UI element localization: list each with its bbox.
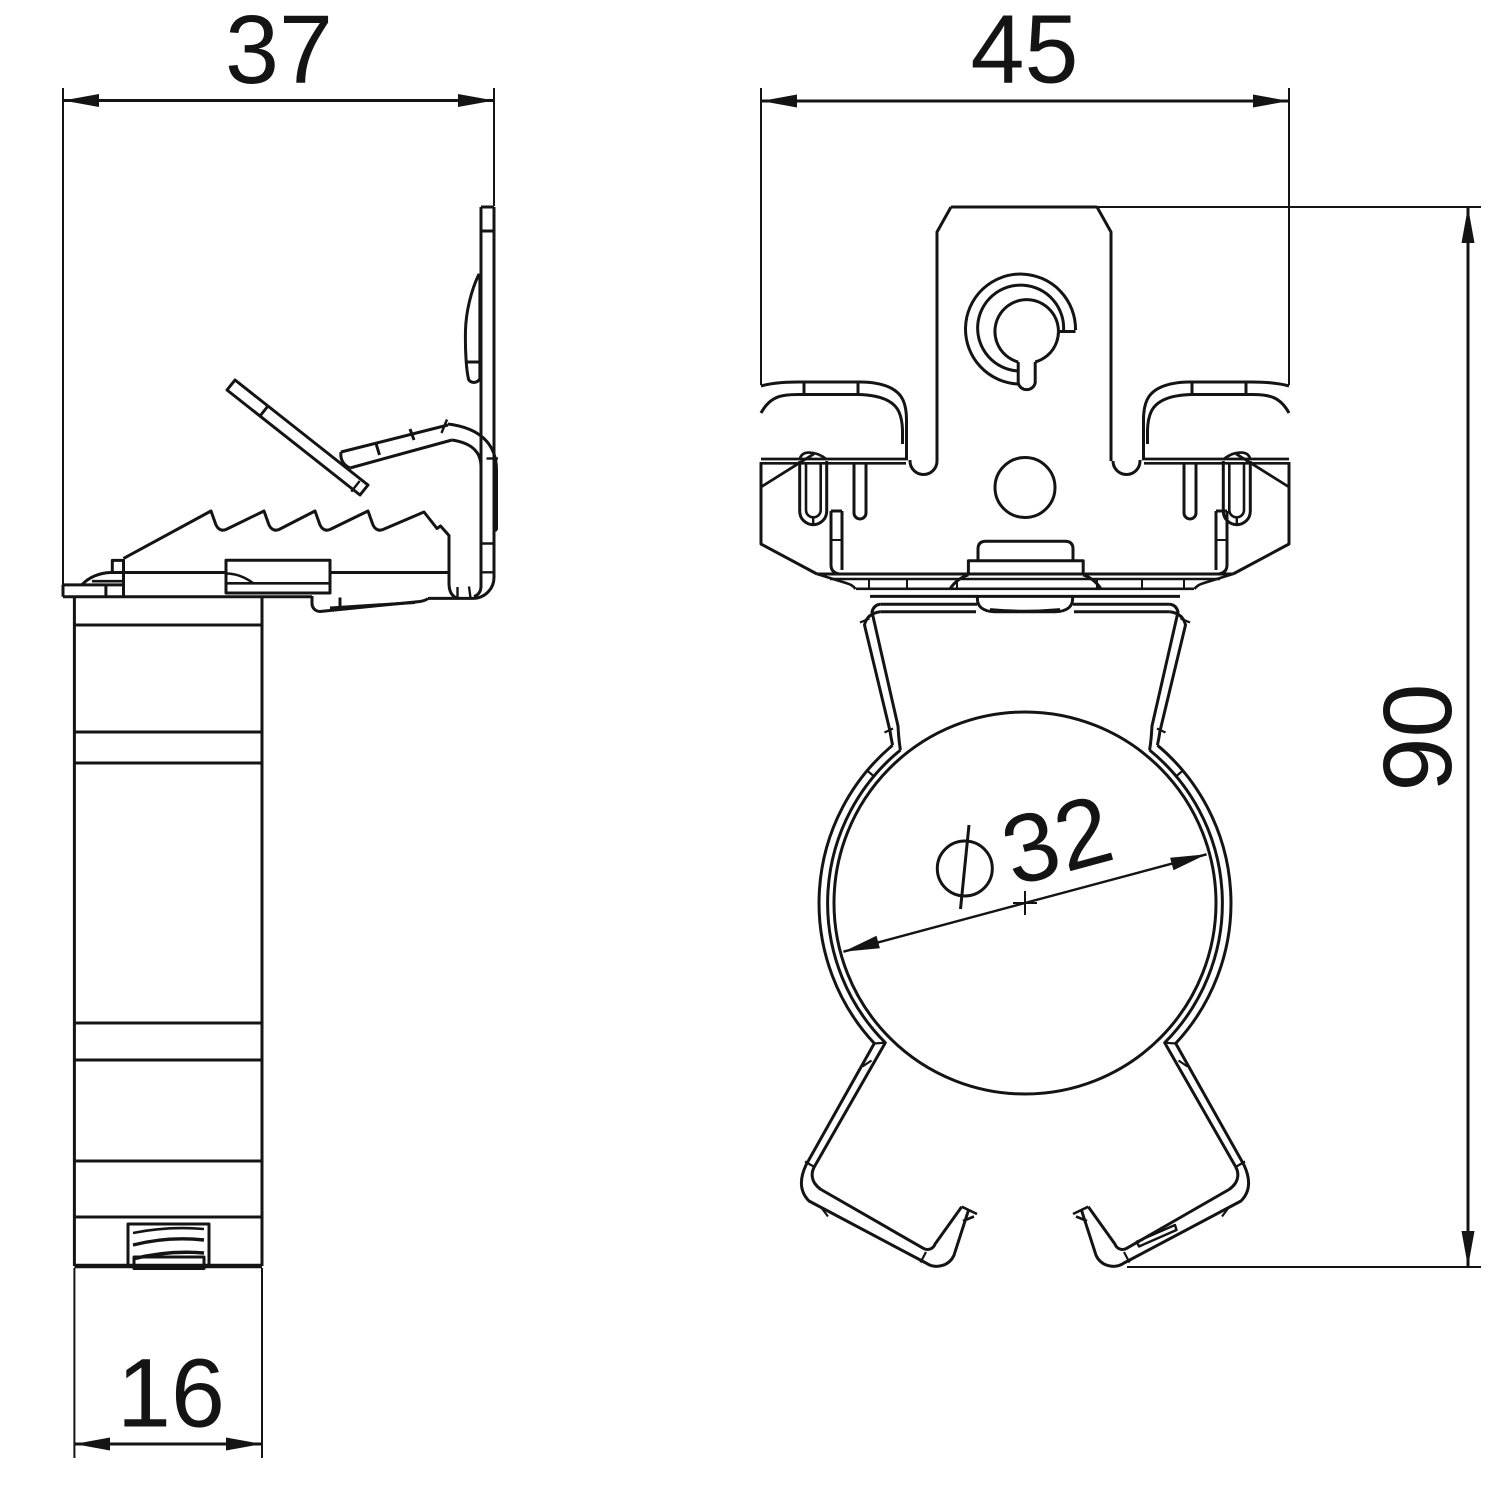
svg-text:90: 90 [1363,684,1472,792]
svg-text:32: 32 [991,773,1123,906]
svg-text:16: 16 [117,1339,225,1448]
svg-text:45: 45 [971,0,1079,104]
svg-text:37: 37 [225,0,333,104]
